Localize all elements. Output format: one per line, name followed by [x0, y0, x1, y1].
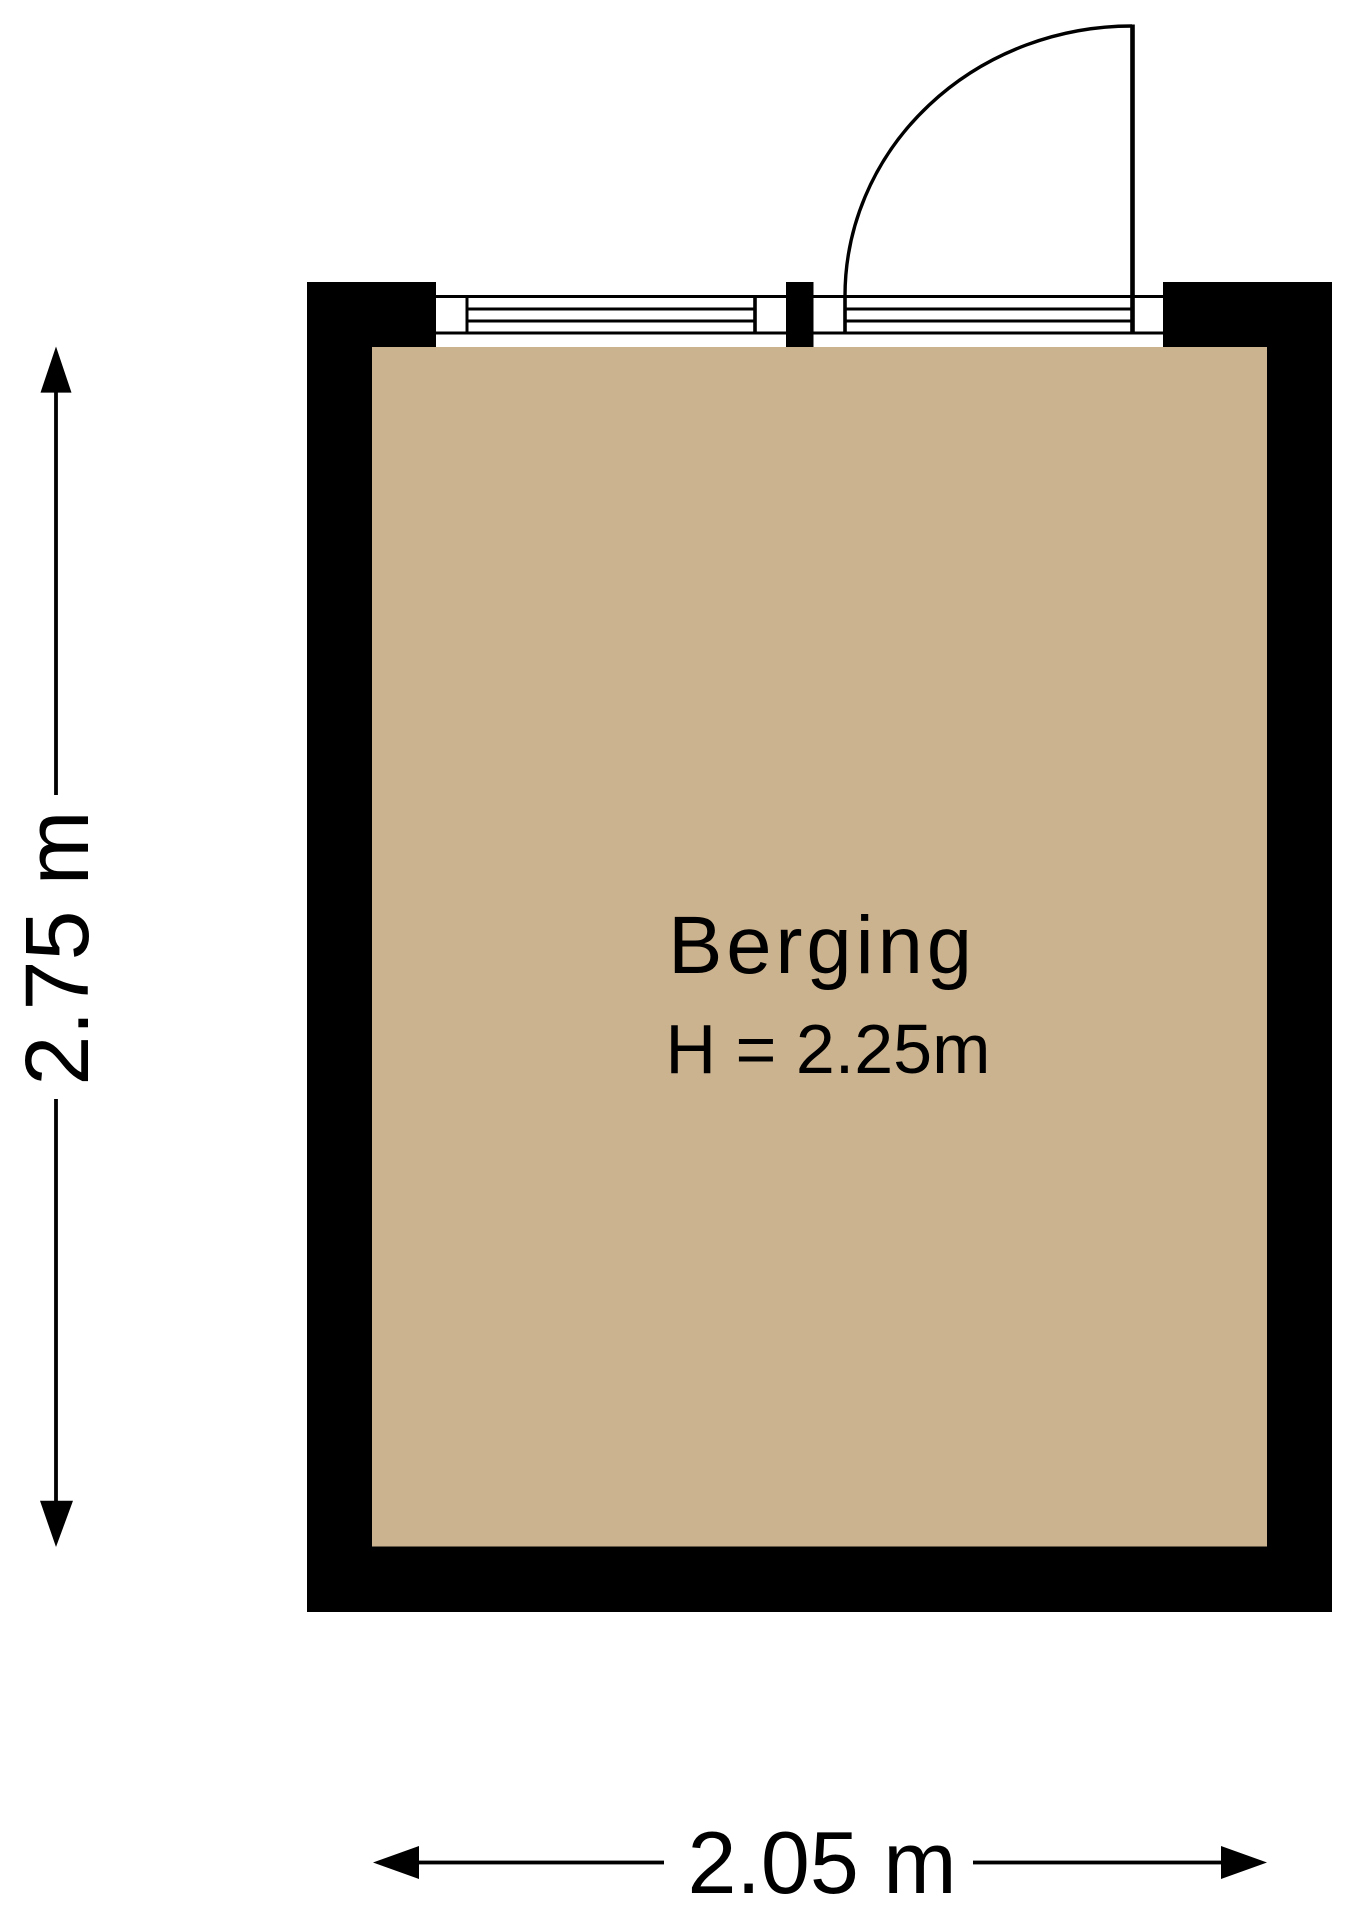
svg-text:H = 2.25m: H = 2.25m: [666, 1010, 991, 1088]
svg-text:2.05 m: 2.05 m: [687, 1813, 956, 1912]
svg-text:Berging: Berging: [668, 900, 976, 991]
svg-text:2.75 m: 2.75 m: [8, 810, 108, 1085]
